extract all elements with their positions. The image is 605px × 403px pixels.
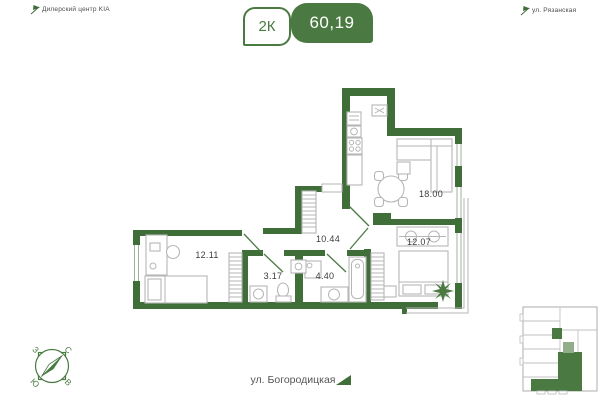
plant: [432, 280, 454, 302]
bedroom-left-furniture: [145, 235, 242, 303]
room-label-kitchen-living: 18.00: [410, 189, 452, 199]
floor-plan-page: С В Ю З: [0, 0, 605, 403]
room-label-bedroom-right: 12.07: [398, 237, 440, 247]
room-label-bedroom-left: 12.11: [186, 250, 228, 260]
desk: [146, 235, 167, 275]
wc-fixtures: [250, 283, 291, 302]
compass: С В Ю З: [13, 328, 90, 403]
entry-door: [322, 184, 342, 192]
landmark-left-label: Дилерский центр KIA: [42, 6, 110, 13]
apartment-badge: 2К 60,19: [241, 2, 375, 44]
rooms-badge: 2К: [243, 7, 291, 46]
wardrobe-hatch: [229, 253, 242, 302]
chair: [167, 246, 180, 259]
landmark-right-label: ул. Рязанская: [532, 7, 576, 14]
area-badge: 60,19: [291, 3, 373, 43]
room-label-hallway: 10.44: [307, 234, 349, 244]
flag-icon: [31, 5, 40, 14]
hallway-wardrobe: [302, 191, 316, 233]
wardrobe-hatch: [371, 253, 384, 300]
building-minimap[interactable]: [520, 307, 597, 394]
floor-plan-drawing: С В Ю З: [0, 0, 605, 403]
room-label-bathroom: 4.40: [306, 271, 344, 281]
room-label-wc: 3.17: [254, 271, 292, 281]
flag-icon: [521, 6, 530, 15]
highlighted-unit: [558, 352, 582, 379]
toilet: [278, 283, 289, 297]
street-bottom-label: ул. Богородицкая: [218, 374, 368, 386]
